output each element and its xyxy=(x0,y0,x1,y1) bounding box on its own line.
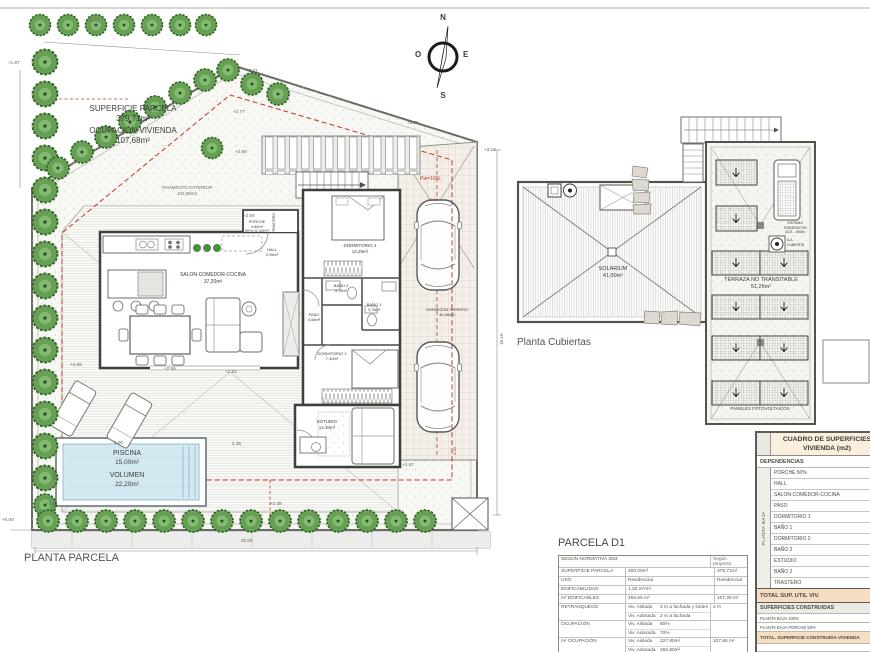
room-value-estudio: 14,30m² xyxy=(319,425,336,430)
legend-box xyxy=(823,340,869,383)
site-plan xyxy=(10,42,501,555)
compass-icon xyxy=(429,26,457,88)
planter-icon xyxy=(203,244,211,252)
dim-label: +2.64 xyxy=(225,369,237,375)
ocupacion-label: OCUPACIÓN VIVIENDA xyxy=(89,126,176,136)
site-plan-title: PLANTA PARCELA xyxy=(24,552,119,565)
utility-box xyxy=(452,498,488,530)
compass-north-label: N xyxy=(440,13,446,23)
room-extra-porche: 50%=(2,40m²) xyxy=(245,229,269,234)
table-row: BAÑO 1 xyxy=(771,523,870,534)
dim-label: 16.15 xyxy=(499,334,505,346)
dim-label: +0.00 xyxy=(2,517,14,523)
table-row: SUPERFICIE PARCELA 200,00m² 379,71m² xyxy=(559,568,747,577)
ocupacion-value: 107,68m² xyxy=(116,136,150,146)
dim-label: +2.53 xyxy=(88,18,100,24)
table-row: SALON-COMEDOR-COCINA xyxy=(771,490,870,501)
compass-east-label: E xyxy=(463,50,468,60)
termosifon-label: ACS - 150lts xyxy=(785,230,805,234)
terraza-label: TERRAZA NO TRANSITABLE xyxy=(722,277,800,284)
table-title-row: CUADRO DE SUPERFICIES VIVIENDA (m2) xyxy=(757,433,870,456)
superficie-parcela-label: SUPERFICIE PARCELA xyxy=(90,104,177,114)
total-util-row: TOTAL SUP. UTIL VIV. xyxy=(757,588,870,603)
room-value-paso: 4,66m² xyxy=(308,318,320,323)
room-value-salon: 37,20m² xyxy=(204,279,222,285)
piscina-value: 15,00m² xyxy=(115,459,139,467)
roof-plan xyxy=(518,117,869,424)
paneles-label: PANELES FOTOVOLTAICOS xyxy=(728,406,791,411)
cuadro-title-line2: VIVIENDA (m2) xyxy=(771,444,870,453)
dim-label: 20.00 xyxy=(241,538,253,544)
dim-label: +1.87 xyxy=(8,60,20,66)
garage-value: 40,06m2 xyxy=(439,313,455,318)
table-row: BAÑO 2 xyxy=(771,567,870,578)
dim-label: 2.00 xyxy=(453,447,458,455)
total-construida-row: TOTAL. SUPERFICIE CONSTRUIDA VIVIENDA xyxy=(757,632,870,644)
dim-label: 6.00 xyxy=(114,440,123,446)
piscina-label: PISCINA xyxy=(113,450,141,458)
terraza-value: 51,26m² xyxy=(749,284,773,291)
parcela-table-title: PARCELA D1 xyxy=(558,537,625,550)
table-header-row: SEGUN NORMATIVA 3/53 Según proyecto xyxy=(559,556,747,568)
table-row: EDIFICABILIDAD 1,20 m²/m² xyxy=(559,586,747,595)
planta-baja-side-label: PLANTA BAJA xyxy=(757,468,771,588)
sidewalk xyxy=(32,532,490,548)
room-value-dormitorio1: 12,25m² xyxy=(352,249,369,254)
col-header-proyecto: Según proyecto xyxy=(711,556,747,567)
table-spacer xyxy=(757,644,870,652)
superficie-parcela-value: 379,71m² xyxy=(116,114,150,124)
col-header-normativa: SEGUN NORMATIVA 3/53 xyxy=(559,556,711,567)
compass-west-label: O xyxy=(415,50,421,60)
driveway xyxy=(398,142,477,460)
room-value-bano1: 3,76m² xyxy=(368,308,380,313)
construidas-header-row: SUPERFICIES CONSTRUIDAS xyxy=(757,603,870,614)
room-value-bano2: 3,75m² xyxy=(335,289,347,294)
dim-label: +2.51 xyxy=(46,501,58,507)
dim-label: +3.05 xyxy=(407,120,419,126)
cuadro-superficies-table: CUADRO DE SUPERFICIES VIVIENDA (m2) DEPE… xyxy=(755,431,870,652)
dim-label: +2.77 xyxy=(246,68,258,74)
room-label-salon: SALON-COMEDOR-COCINA xyxy=(180,272,246,278)
table-row: DEPENDENCIAS xyxy=(757,456,870,468)
table-row: PLANTA BAJA 100% xyxy=(757,614,870,623)
dim-label: 4.36 xyxy=(232,441,241,447)
volumen-value: 22,20m² xyxy=(115,481,139,489)
volumen-label: VOLUMEN xyxy=(110,472,145,480)
roof-plan-title: Planta Cubiertas xyxy=(517,337,591,349)
table-row: DORMITORIO 2 xyxy=(771,534,870,545)
table-row: m² EDIFICABLES 455,65 m² 107,28 m² xyxy=(559,595,747,604)
table-row: USO Residencial Residencial xyxy=(559,577,747,586)
cuadro-title-line1: CUADRO DE SUPERFICIES xyxy=(771,435,870,444)
dim-label: +2.77 xyxy=(233,109,245,115)
table-row: OCUPACIÓN Viv. Aislada60% Viv. Adosada70… xyxy=(559,621,747,638)
table-row: PORCHE 50% xyxy=(771,468,870,479)
parcela-table: SEGUN NORMATIVA 3/53 Según proyecto SUPE… xyxy=(558,555,748,652)
room-value-hall: 2,06m² xyxy=(266,253,278,258)
dim-label: +0.67 xyxy=(428,198,438,203)
solarium-label: SOLARIUM xyxy=(599,266,628,273)
table-row: PASO xyxy=(771,501,870,512)
car-icon xyxy=(415,342,462,432)
car-icon xyxy=(415,200,462,290)
compass-south-label: S xyxy=(440,91,445,101)
dim-label: +2.58 xyxy=(70,362,82,368)
dim-label: +2.57 xyxy=(402,462,414,468)
dim-label: 3.00 xyxy=(52,471,58,480)
ac-unit-icon xyxy=(769,236,785,252)
pavimento-value: 102,06m2 xyxy=(177,191,197,196)
table-row: m² OCUPACIÓN Viv. Aislada227,80m² Viv. A… xyxy=(559,638,747,652)
planter-icon xyxy=(213,244,221,252)
dim-label: +2.59 xyxy=(235,149,247,155)
dim-label: +2.59 xyxy=(243,213,255,219)
solarium-value: 41,00m² xyxy=(603,273,623,280)
pergola xyxy=(262,136,420,174)
table-row: ESTUDIO xyxy=(771,556,870,567)
solarium xyxy=(518,182,706,322)
table-row: TRASTERO xyxy=(771,578,870,588)
table-row: BAÑO 2 xyxy=(771,545,870,556)
dim-label: +3.13 xyxy=(484,147,496,153)
table-row: RETRANQUEOS Viv. Aislada2 m a fachada y … xyxy=(559,604,747,621)
table-row: HALL xyxy=(771,479,870,490)
table-corner-cell xyxy=(757,433,771,455)
dim-label: +2.99 xyxy=(164,366,176,372)
planter-icon xyxy=(193,244,201,252)
room-value-dormitorio2: 7,40m² xyxy=(326,357,338,362)
thermosiphon-icon xyxy=(774,160,800,220)
room-label-trastero: TRASTERO xyxy=(272,213,276,232)
table-row: PLANTA BAJA PORCHE 50% xyxy=(757,623,870,632)
dim-label: +2.38 xyxy=(270,501,282,507)
table-row: DORMITORIO 1 xyxy=(771,512,870,523)
architectural-sheet: SUPERFICIE PARCELA 379,71m² OCUPACIÓN VI… xyxy=(0,0,870,652)
ramp-slope-label: Pte=16% xyxy=(420,176,440,182)
ac-cubierta-label: CUBIERTA xyxy=(787,243,804,247)
